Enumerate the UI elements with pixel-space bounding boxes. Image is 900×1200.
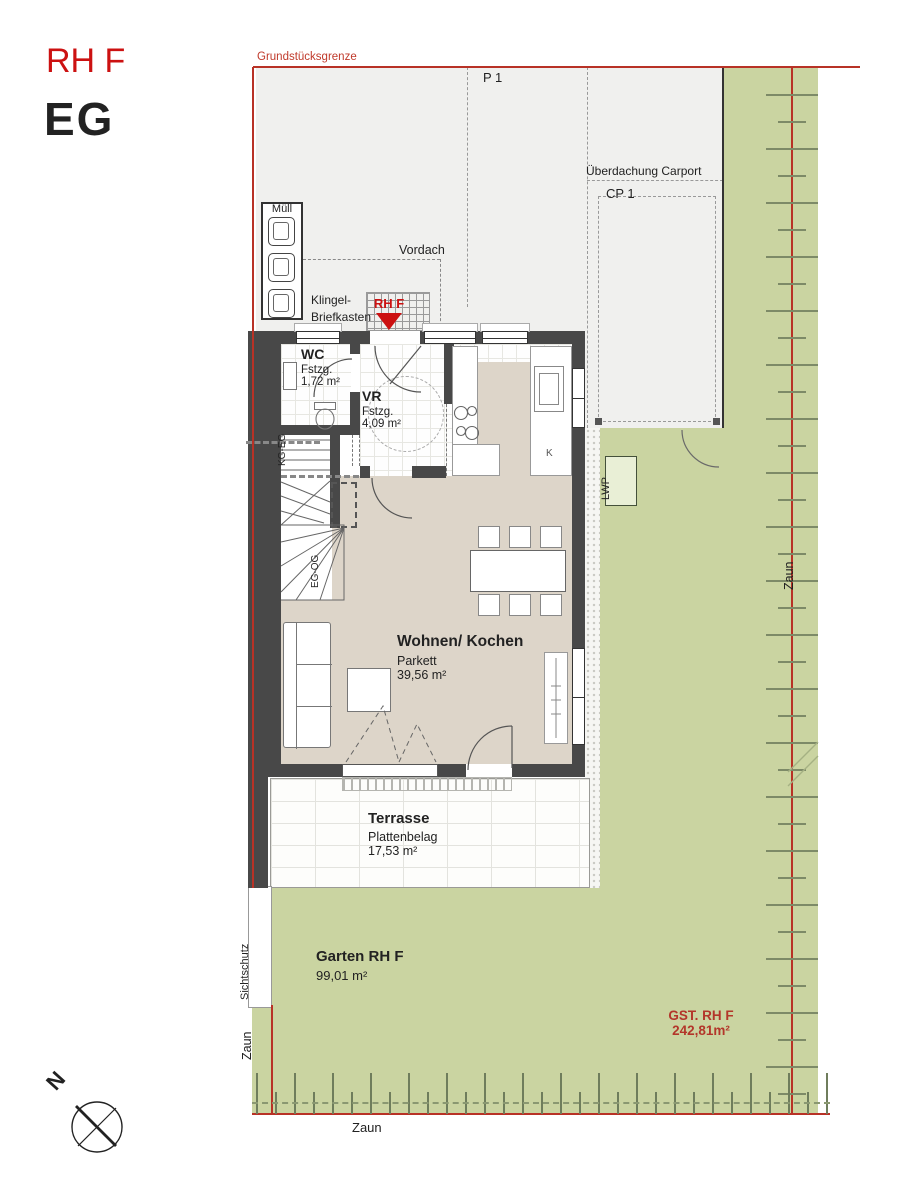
- living-label: Wohnen/ Kochen Parkett 39,56 m²: [397, 633, 523, 682]
- washbasin: [283, 362, 297, 390]
- window-north-1: [296, 331, 340, 344]
- muell-bin: [268, 253, 295, 282]
- muell-bin: [268, 217, 295, 246]
- boundary-label: Grundstücksgrenze: [257, 51, 357, 63]
- vr-wall-south: [412, 466, 446, 478]
- carport-edge-line: [722, 67, 724, 428]
- carport-cp1-outline: [598, 196, 716, 422]
- niche-dashed: [359, 435, 360, 466]
- fence-label-bottom: Zaun: [352, 1120, 382, 1135]
- compass-icon: [72, 1102, 122, 1152]
- dining-chair: [478, 526, 500, 548]
- vr-wall-south-stub: [360, 466, 370, 478]
- terrace-name: Terrasse: [368, 810, 438, 827]
- kitchen-sink-basin: [539, 373, 559, 405]
- wc-area: 1,72 m²: [301, 376, 340, 388]
- heat-pump-label: LWP: [599, 477, 613, 500]
- doorbell-label: Klingel- Briefkasten: [311, 292, 371, 326]
- muell-bin: [268, 289, 295, 318]
- vr-finish: Fstzg.: [362, 406, 401, 418]
- fence-dashed-green: [252, 1102, 830, 1104]
- boundary-line-left: [252, 67, 254, 888]
- terrace-folding-door: [342, 764, 438, 777]
- radiator: [544, 652, 568, 744]
- terrace-label: Terrasse Plattenbelag 17,53 m²: [368, 810, 438, 858]
- wc-finish: Fstzg.: [301, 364, 340, 376]
- vr-opening-dashed: [446, 404, 447, 476]
- fridge-marker: K: [546, 448, 553, 459]
- fence-label-right: Zaun: [782, 562, 796, 591]
- carport-post-left: [595, 418, 602, 425]
- plot-area: 242,81m²: [640, 1023, 762, 1038]
- garden-name: Garten RH F: [316, 948, 404, 965]
- sofa: [283, 622, 331, 748]
- living-finish: Parkett: [397, 654, 523, 668]
- fence-label-left: Zaun: [240, 1032, 254, 1061]
- floor-title: EG: [44, 92, 114, 146]
- entrance-unit-label: RH F: [369, 296, 409, 311]
- garden-area: 99,01 m²: [316, 968, 404, 983]
- coffee-table: [347, 668, 391, 712]
- plot-label: GST. RH F 242,81m²: [640, 1008, 762, 1038]
- dining-chair: [540, 594, 562, 616]
- window-east-living: [572, 648, 585, 745]
- muell-box: [261, 202, 303, 320]
- kitchen-counter: [452, 444, 500, 476]
- living-area: 39,56 m²: [397, 668, 523, 682]
- dining-table: [470, 550, 566, 592]
- wall-left: [268, 344, 281, 764]
- stairs-kg-eg-label: KG-EG: [276, 434, 290, 466]
- wc-wall-stub: [350, 344, 360, 354]
- parking-line-2: [587, 67, 588, 428]
- dining-chair: [509, 526, 531, 548]
- privacy-screen-label: Sichtschutz: [238, 944, 252, 1000]
- vr-name: VR: [362, 388, 401, 404]
- dining-chair: [540, 526, 562, 548]
- carport-roof-label: Überdachung Carport: [586, 164, 701, 178]
- dining-chair: [478, 594, 500, 616]
- entrance-door-opening: [370, 331, 420, 344]
- carport-roof-edge: [587, 180, 723, 181]
- vordach-line-v: [440, 259, 441, 331]
- dining-chair: [509, 594, 531, 616]
- vr-label: VR Fstzg. 4,09 m²: [362, 388, 401, 430]
- toilet-tank: [314, 402, 336, 410]
- terrace-door-opening: [466, 764, 512, 777]
- stairs-eg-og-label: EG-OG: [309, 555, 323, 588]
- garden-label: Garten RH F 99,01 m²: [316, 948, 404, 983]
- floor-plan: RH F K: [0, 0, 900, 1200]
- boundary-line-top: [253, 66, 860, 68]
- vordach-label: Vordach: [399, 243, 445, 257]
- parking-label: P 1: [483, 70, 502, 85]
- window-north-2: [424, 331, 476, 344]
- project-code: RH F: [46, 42, 125, 81]
- terrace-threshold: [342, 777, 512, 791]
- muell-label: Müll: [261, 203, 303, 215]
- carport-post-right: [713, 418, 720, 425]
- living-name: Wohnen/ Kochen: [397, 633, 523, 651]
- wardrobe-dashed: [331, 482, 357, 528]
- compass-north-label: N: [41, 1066, 71, 1095]
- wc-name: WC: [301, 346, 340, 362]
- section-cut-line: [281, 475, 359, 478]
- vordach-line-h: [303, 259, 440, 260]
- vr-area: 4,09 m²: [362, 418, 401, 430]
- fence-ticks-right: [778, 121, 806, 1101]
- plot-name: GST. RH F: [640, 1008, 762, 1023]
- parking-line-1: [467, 67, 468, 307]
- niche-dashed: [352, 435, 353, 466]
- carport-label: CP 1: [606, 186, 635, 201]
- kitchen-counter: [452, 346, 478, 450]
- wc-label: WC Fstzg. 1,72 m²: [301, 346, 340, 388]
- entrance-arrow-icon: [376, 313, 402, 330]
- terrace-area: 17,53 m²: [368, 844, 438, 858]
- window-east-kitchen: [572, 368, 585, 428]
- terrace-finish: Plattenbelag: [368, 830, 438, 844]
- window-north-3: [482, 331, 528, 344]
- party-wall: [248, 331, 268, 888]
